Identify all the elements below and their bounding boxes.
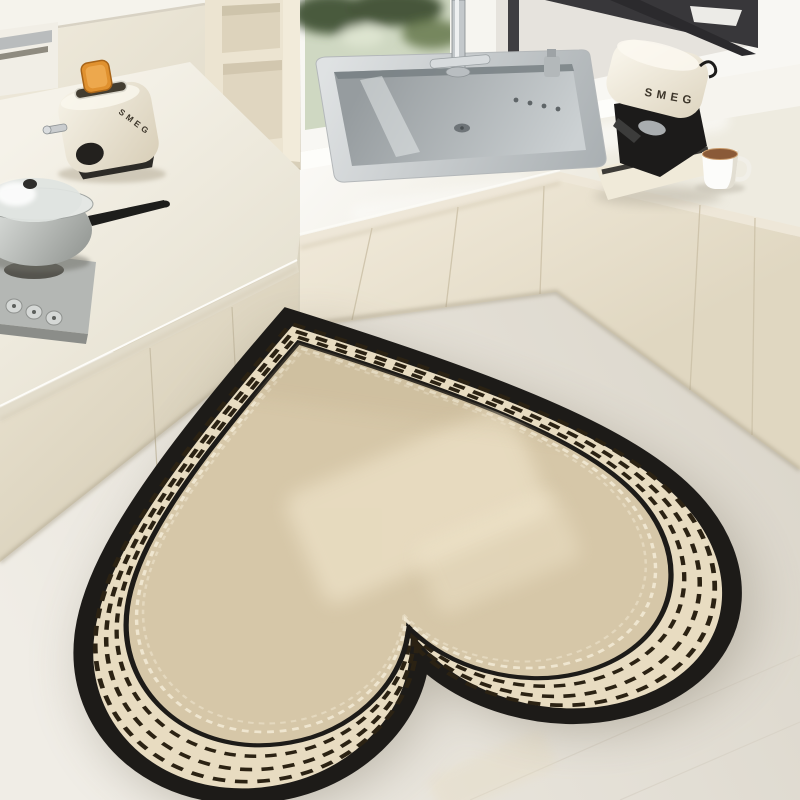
kitchen-photo: SMEG [0, 0, 800, 800]
lid-knob [23, 179, 37, 189]
built-in-appliance [0, 22, 58, 96]
coffee-surface [703, 149, 738, 160]
